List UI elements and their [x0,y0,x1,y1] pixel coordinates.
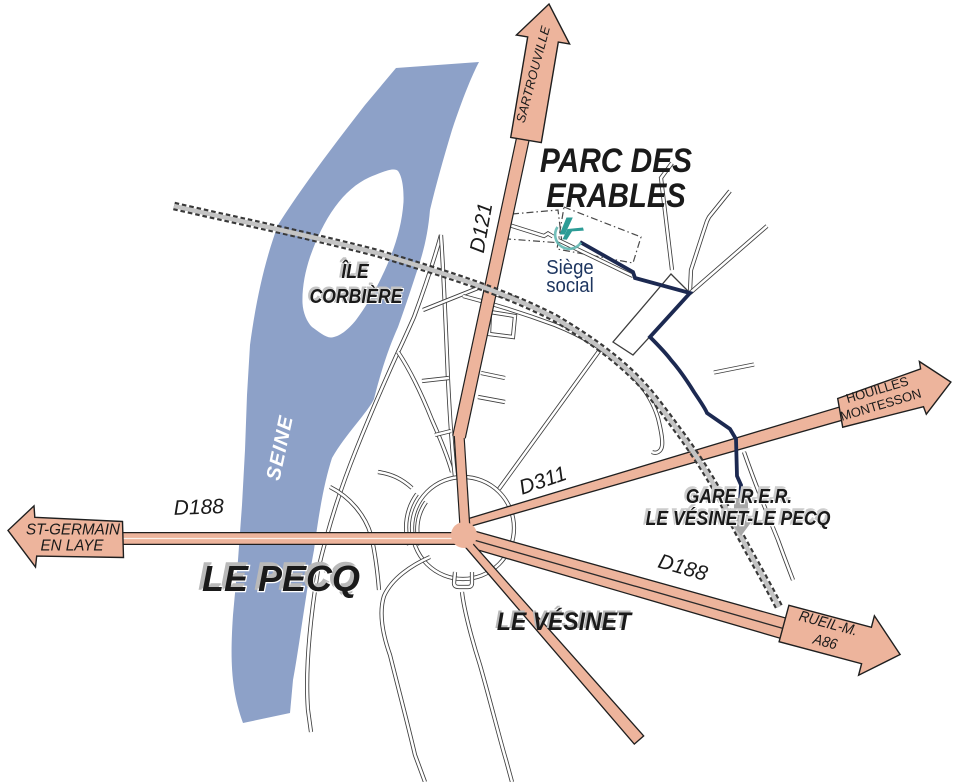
svg-text:LE PECQ: LE PECQ [202,558,360,599]
svg-text:ÎLE: ÎLE [341,260,370,282]
svg-text:ST-GERMAIN: ST-GERMAIN [26,521,121,538]
svg-text:ERABLES: ERABLES [546,176,686,215]
svg-text:social: social [546,275,594,297]
svg-text:CORBIÈRE: CORBIÈRE [310,285,404,307]
svg-text:EN LAYE: EN LAYE [40,537,104,554]
svg-text:LE VÉSINET-LE PECQ: LE VÉSINET-LE PECQ [646,507,831,529]
svg-text:PARC DES: PARC DES [540,141,693,179]
svg-text:LE VÉSINET: LE VÉSINET [497,607,633,636]
svg-text:D188: D188 [173,495,224,520]
svg-text:GARE R.E.R.: GARE R.E.R. [686,485,792,507]
